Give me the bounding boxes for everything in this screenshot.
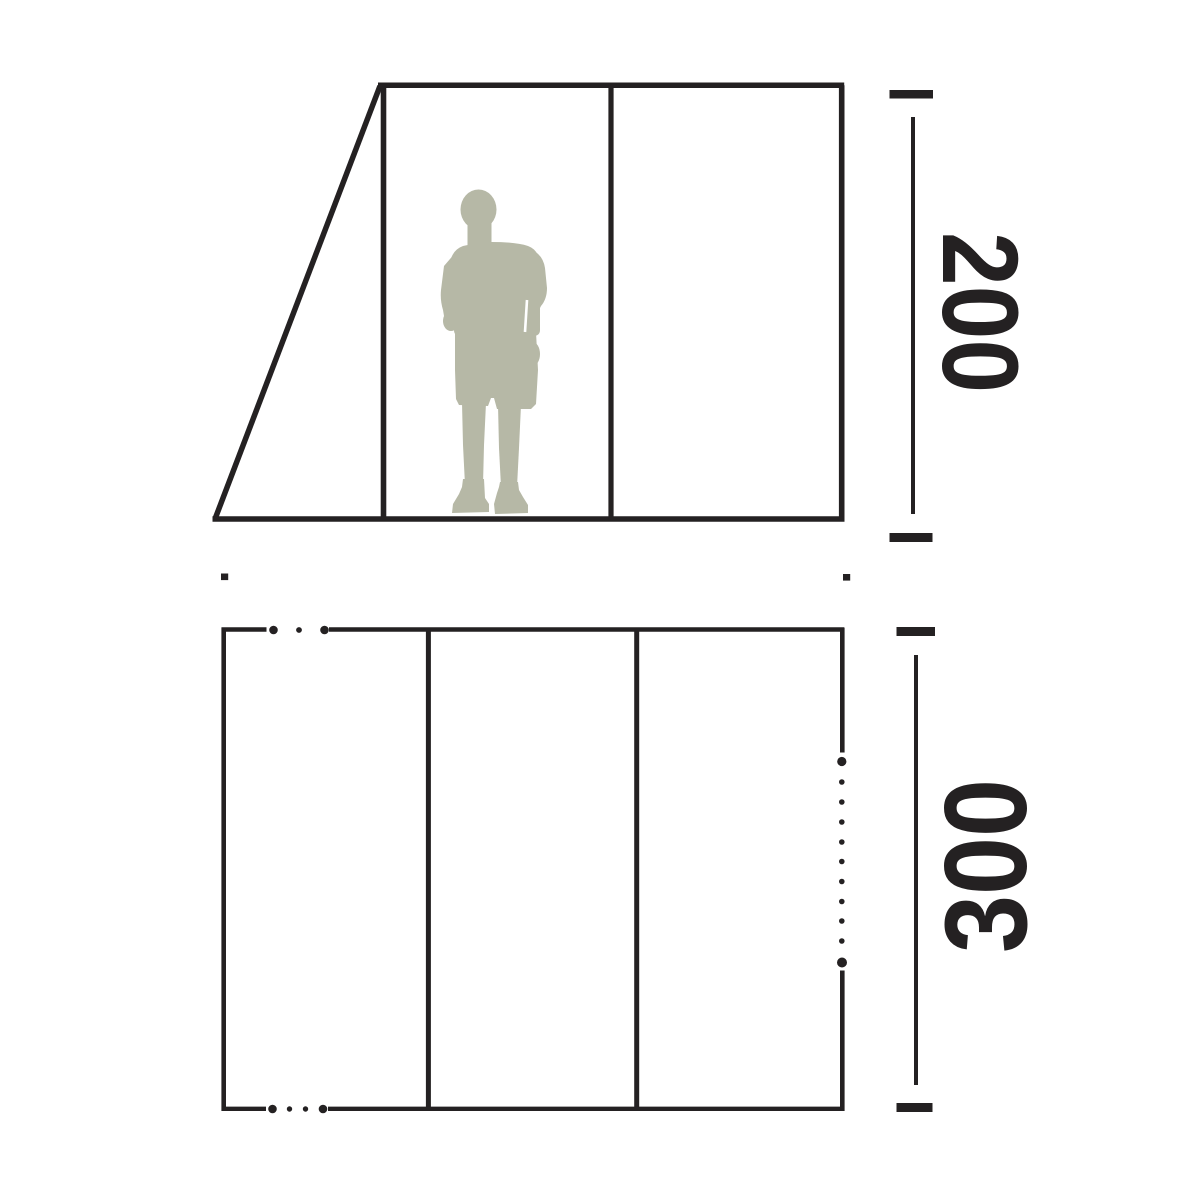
svg-text:200: 200 — [920, 232, 1041, 393]
svg-text:300: 300 — [920, 779, 1051, 953]
